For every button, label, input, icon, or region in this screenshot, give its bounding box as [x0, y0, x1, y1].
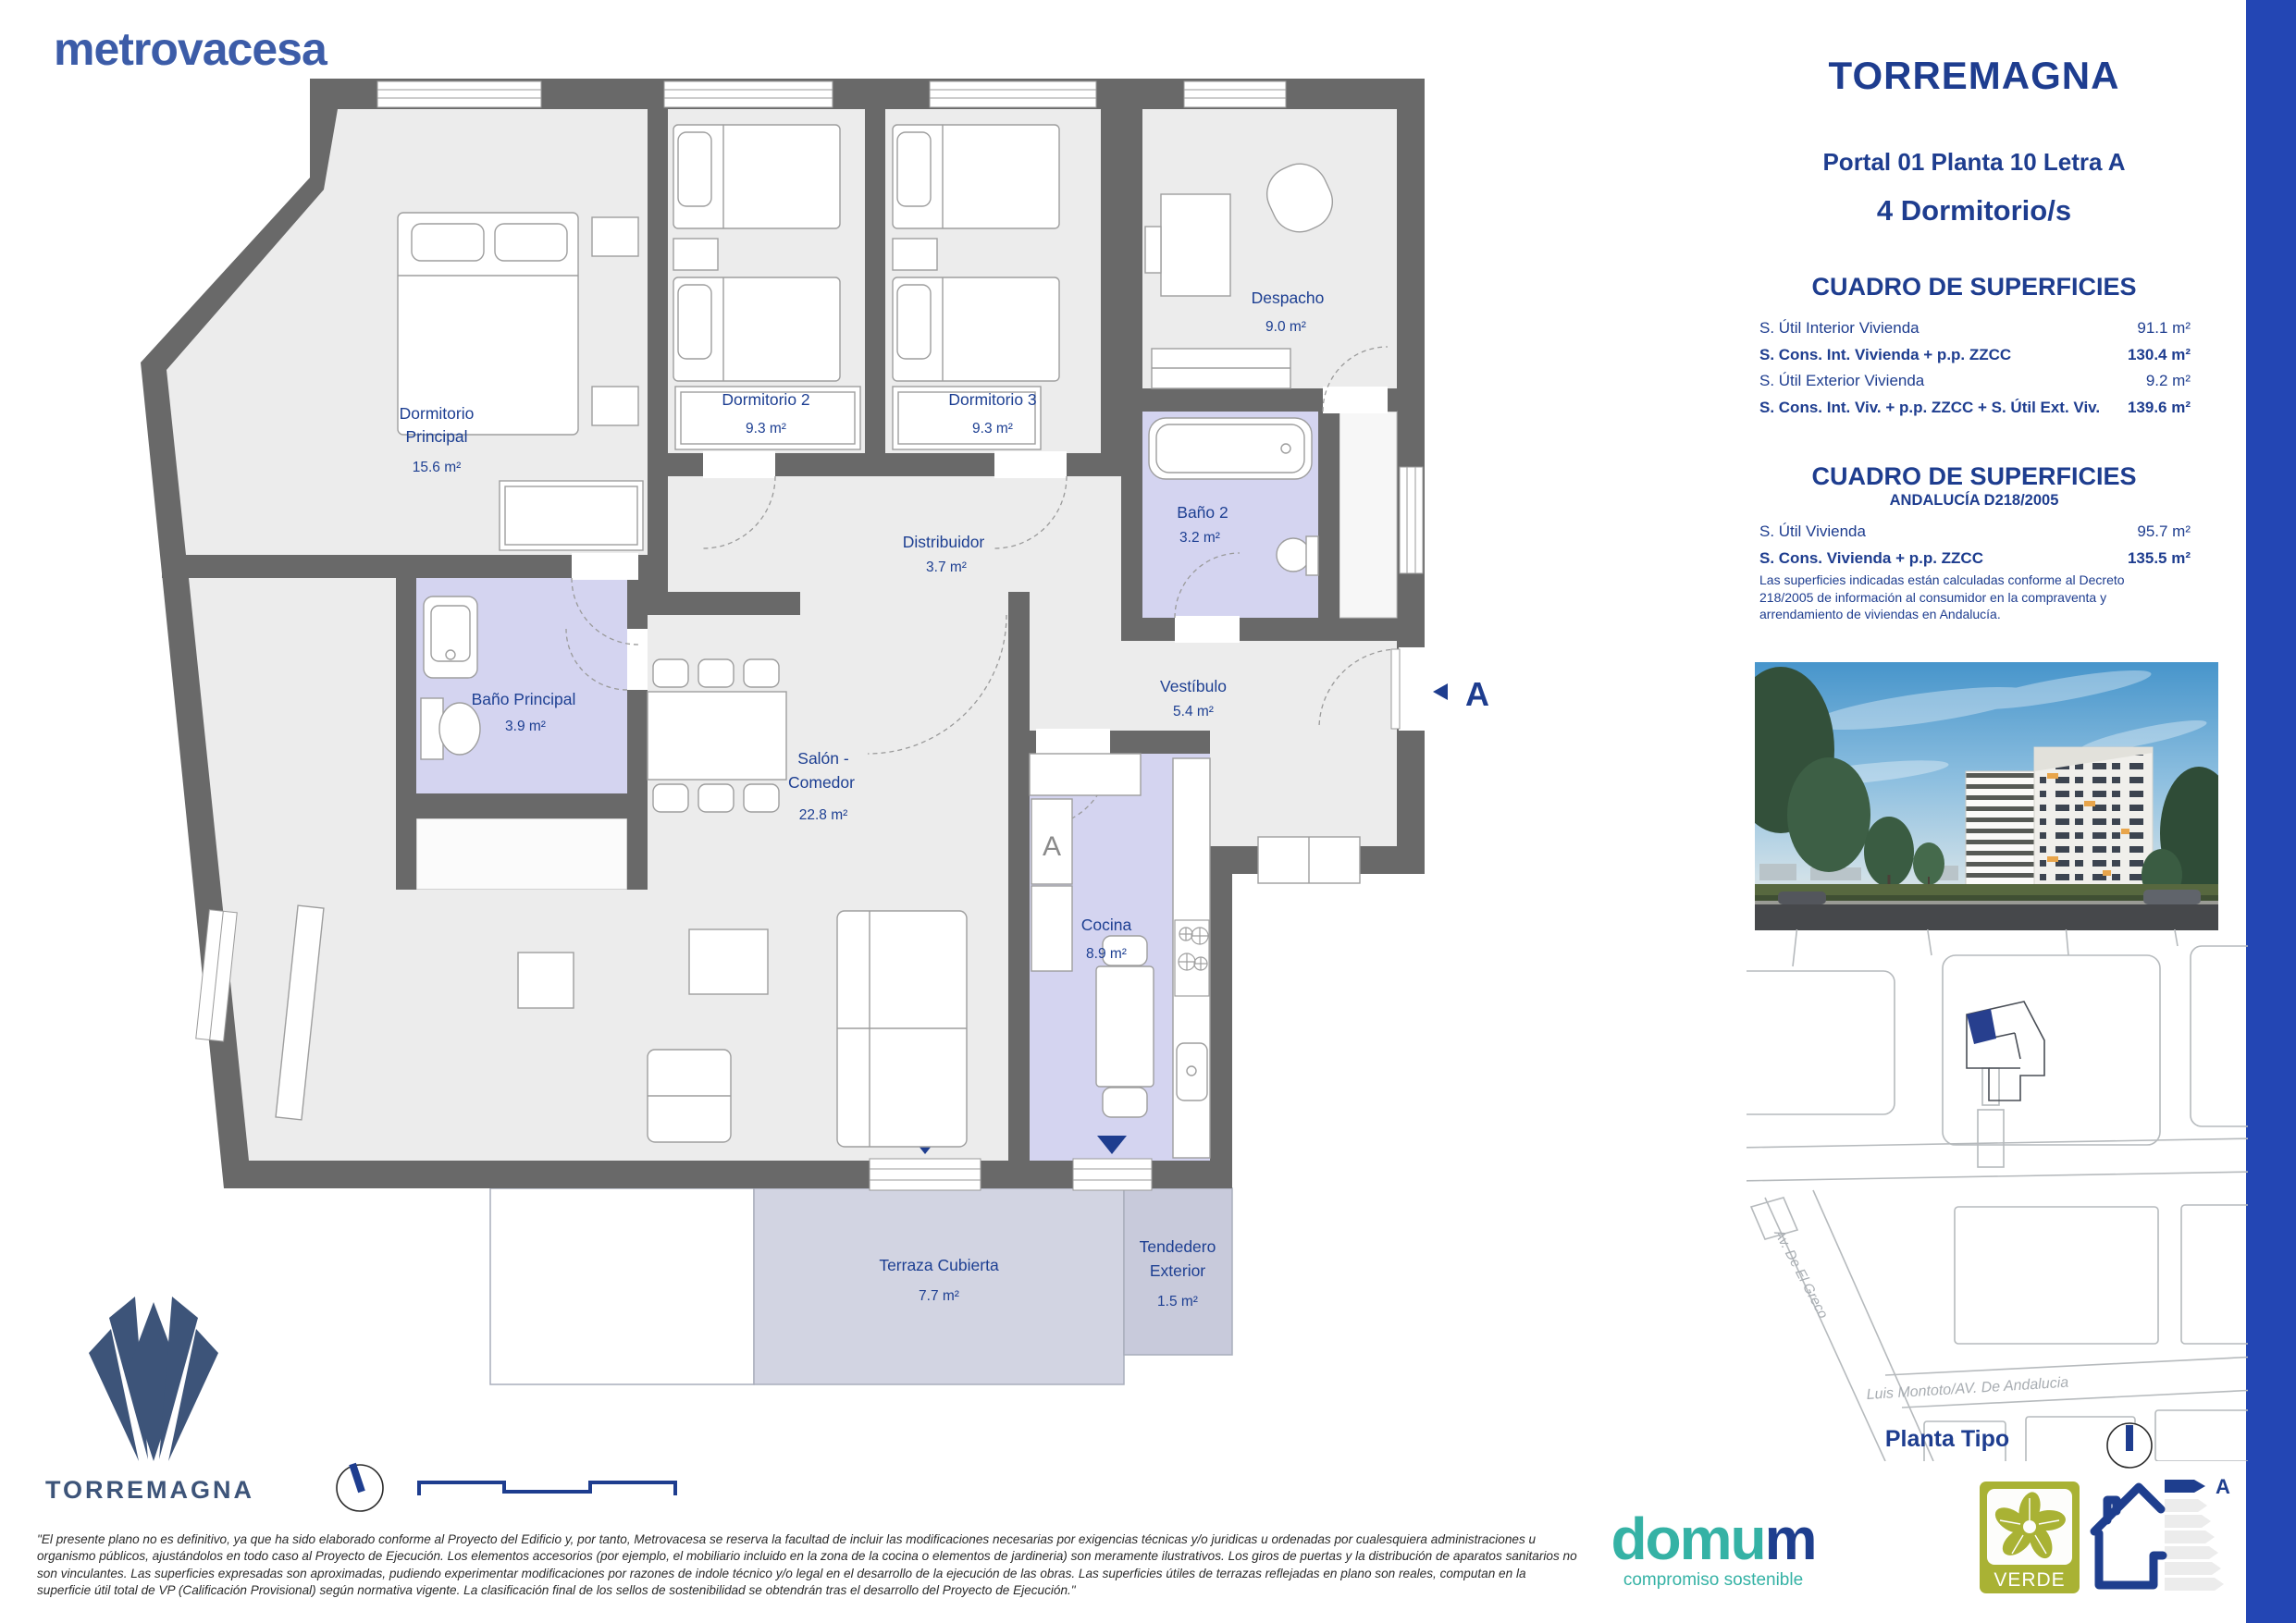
svg-text:9.3 m²: 9.3 m²: [746, 421, 786, 436]
table-row: S. Cons. Int. Viv. + p.p. ZZCC + S. Útil…: [1759, 395, 2191, 422]
surfaces-table-andalucia-subtitle: ANDALUCÍA D218/2005: [1758, 492, 2191, 510]
section-marker-a: A: [1465, 675, 1489, 713]
svg-text:Dormitorio 2: Dormitorio 2: [722, 390, 809, 409]
entrance-arrow-icon: [1433, 683, 1448, 700]
stove-icon: [1175, 920, 1209, 996]
floorplan-drawing: A Dormitorio Principal 15.6 m² Dormitori…: [0, 0, 1573, 1623]
svg-text:Salón -: Salón -: [797, 749, 849, 768]
svg-text:9.0 m²: 9.0 m²: [1265, 319, 1306, 335]
svg-text:Principal: Principal: [405, 427, 467, 446]
svg-text:Dormitorio 3: Dormitorio 3: [948, 390, 1036, 409]
svg-text:Dormitorio: Dormitorio: [400, 404, 475, 423]
location-map: Av. De El Greco Luis Montoto/AV. De Anda…: [1747, 929, 2248, 1461]
svg-text:7.7 m²: 7.7 m²: [919, 1288, 959, 1304]
svg-text:Cocina: Cocina: [1081, 916, 1132, 934]
fridge-letter: A: [1043, 831, 1061, 862]
surfaces-table-andalucia-title: CUADRO DE SUPERFICIES: [1758, 462, 2191, 491]
svg-text:3.2 m²: 3.2 m²: [1179, 530, 1220, 546]
unit-highlight: [1967, 1009, 1996, 1044]
terrace-open-slab: [490, 1188, 754, 1384]
svg-text:Despacho: Despacho: [1252, 289, 1325, 307]
svg-text:1.5 m²: 1.5 m²: [1157, 1294, 1198, 1309]
right-blue-stripe: [2246, 0, 2296, 1623]
svg-text:Baño Principal: Baño Principal: [472, 690, 576, 708]
svg-text:Comedor: Comedor: [788, 773, 855, 792]
verde-label: VERDE: [1980, 1569, 2080, 1592]
map-north-compass-icon: [2104, 1420, 2155, 1471]
surfaces-table-title: CUADRO DE SUPERFICIES: [1758, 273, 2191, 301]
svg-text:5.4 m²: 5.4 m²: [1173, 704, 1214, 719]
table-row: S. Útil Interior Vivienda91.1 m²: [1759, 315, 2191, 342]
svg-text:Vestíbulo: Vestíbulo: [1160, 677, 1227, 695]
scale-bar: [412, 1472, 689, 1506]
building-photo: [1755, 662, 2218, 930]
energy-rating-bar-a: [2165, 1480, 2205, 1493]
svg-text:3.9 m²: 3.9 m²: [505, 719, 546, 734]
north-compass-icon: [331, 1459, 389, 1517]
map-caption: Planta Tipo: [1864, 1426, 2031, 1453]
shaft: [1339, 412, 1397, 618]
svg-text:15.6 m²: 15.6 m²: [413, 460, 462, 475]
domum-tagline: compromiso sostenible: [1584, 1570, 1843, 1591]
svg-text:Terraza Cubierta: Terraza Cubierta: [879, 1256, 999, 1274]
plan-sheet: metrovacesa: [0, 0, 2296, 1623]
svg-text:3.7 m²: 3.7 m²: [926, 559, 967, 575]
table-row: S. Cons. Int. Vivienda + p.p. ZZCC130.4 …: [1759, 342, 2191, 369]
svg-text:Baño 2: Baño 2: [1177, 503, 1228, 522]
energy-house-icon: A: [2083, 1472, 2236, 1602]
table-row: S. Cons. Vivienda + p.p. ZZCC135.5 m²: [1759, 546, 2191, 572]
svg-text:Exterior: Exterior: [1150, 1261, 1205, 1280]
entrance-door-leaf: [1391, 649, 1400, 729]
domum-logo: domum compromiso sostenible: [1584, 1509, 1843, 1591]
torremagna-logo-icon: [74, 1295, 236, 1470]
svg-text:Tendedero: Tendedero: [1140, 1237, 1216, 1256]
surfaces-table-andalucia: S. Útil Vivienda95.7 m² S. Cons. Viviend…: [1759, 519, 2191, 572]
table-row: S. Útil Exterior Vivienda9.2 m²: [1759, 368, 2191, 395]
verde-leaf-icon: [1987, 1489, 2072, 1565]
svg-text:9.3 m²: 9.3 m²: [972, 421, 1013, 436]
page-title: TORREMAGNA: [1758, 54, 2191, 98]
energy-rating-letter: A: [2216, 1475, 2230, 1498]
legal-disclaimer: "El presente plano no es definitivo, ya …: [37, 1531, 1577, 1600]
torremagna-logo-text: TORREMAGNA: [39, 1476, 261, 1505]
street-label-diagonal: Av. De El Greco: [1771, 1226, 1831, 1322]
bedroom-count: 4 Dormitorio/s: [1758, 194, 2191, 227]
terrace-covered: [754, 1188, 1124, 1384]
utility-closet: [416, 818, 627, 890]
unit-location: Portal 01 Planta 10 Letra A: [1758, 148, 2191, 177]
verde-badge: VERDE: [1980, 1482, 2080, 1593]
svg-text:22.8 m²: 22.8 m²: [799, 807, 848, 823]
svg-text:8.9 m²: 8.9 m²: [1086, 946, 1127, 962]
surfaces-table: S. Útil Interior Vivienda91.1 m² S. Cons…: [1759, 315, 2191, 421]
tower: [1966, 747, 2153, 907]
svg-text:Distribuidor: Distribuidor: [903, 533, 985, 551]
decree-note: Las superficies indicadas están calculad…: [1759, 572, 2178, 623]
table-row: S. Útil Vivienda95.7 m²: [1759, 519, 2191, 546]
